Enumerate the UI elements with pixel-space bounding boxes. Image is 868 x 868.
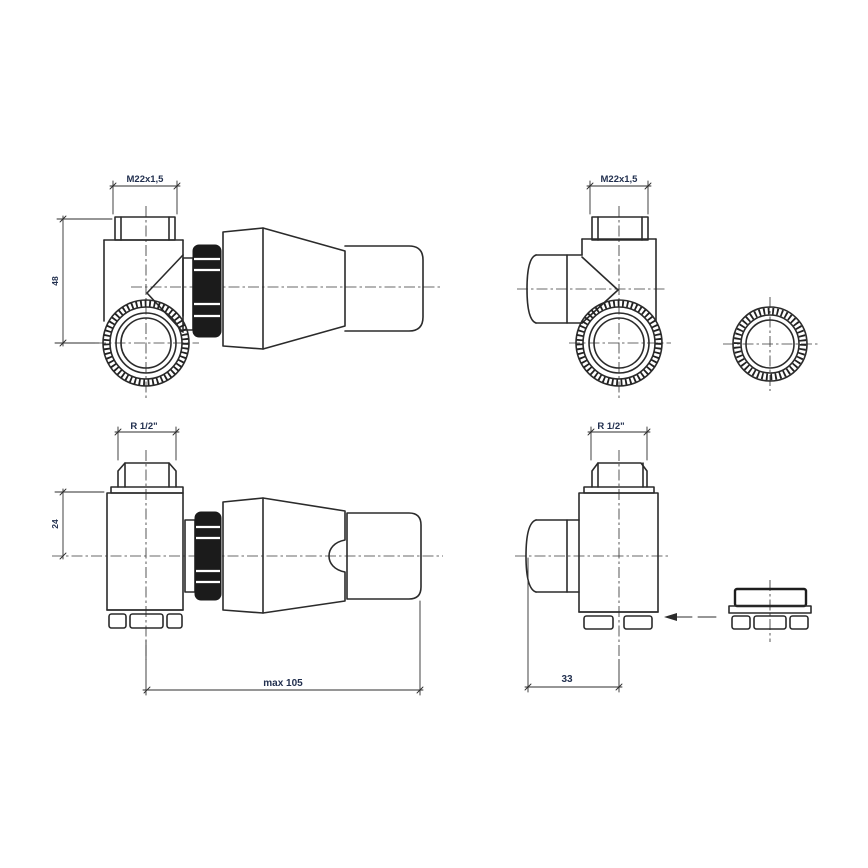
dimension-label-33: 33 bbox=[561, 674, 573, 685]
dimension-max-105: max 105 bbox=[143, 601, 423, 695]
dimension-label-m22: M22x1,5 bbox=[127, 174, 165, 185]
radiator-tailpiece-serrated bbox=[107, 610, 183, 628]
technical-drawing-page: M22x1,5 48 bbox=[0, 0, 868, 868]
head-connection-stub bbox=[527, 255, 582, 323]
view-corner-valve-with-head-side: R 1/2" 24 bbox=[50, 421, 443, 695]
threaded-connection-r12 bbox=[111, 463, 183, 493]
dimension-24: 24 bbox=[50, 489, 104, 559]
head-connection-stub bbox=[526, 520, 579, 592]
view-valve-body-side: R 1/2" bbox=[515, 421, 811, 692]
dimension-m22-top-left: M22x1,5 bbox=[110, 174, 180, 214]
dimension-label-r12: R 1/2" bbox=[130, 421, 157, 432]
compression-ring-part bbox=[723, 297, 818, 391]
dimension-48: 48 bbox=[50, 216, 112, 346]
dimension-label-r12: R 1/2" bbox=[597, 421, 624, 432]
view-corner-valve-with-head-front: M22x1,5 48 bbox=[50, 174, 443, 399]
valve-body bbox=[579, 493, 658, 612]
technical-drawing-canvas: M22x1,5 48 bbox=[0, 0, 868, 868]
threaded-connection-m22 bbox=[592, 217, 648, 240]
dimension-label-m22: M22x1,5 bbox=[601, 174, 639, 185]
thermostatic-head bbox=[223, 498, 421, 613]
assembly-direction-arrow bbox=[664, 613, 720, 621]
dimension-r12-bottom-left: R 1/2" bbox=[115, 421, 179, 460]
dimension-33: 33 bbox=[525, 558, 622, 692]
valve-body bbox=[107, 493, 183, 610]
neck-collar bbox=[111, 487, 183, 493]
threaded-connection-m22 bbox=[115, 217, 175, 240]
cap-nut-part-side bbox=[729, 580, 811, 642]
dimension-label-max105: max 105 bbox=[263, 678, 303, 689]
view-valve-body-front: M22x1,5 bbox=[517, 174, 818, 399]
thermostatic-head bbox=[223, 228, 423, 349]
dimension-label-24: 24 bbox=[50, 519, 60, 529]
thermostatic-adapter-ring bbox=[193, 245, 221, 337]
head-connection-step bbox=[183, 258, 193, 330]
dimension-label-48: 48 bbox=[50, 276, 60, 286]
radiator-tailpiece-serrated bbox=[579, 612, 658, 629]
thermostatic-adapter-ring bbox=[195, 512, 221, 600]
